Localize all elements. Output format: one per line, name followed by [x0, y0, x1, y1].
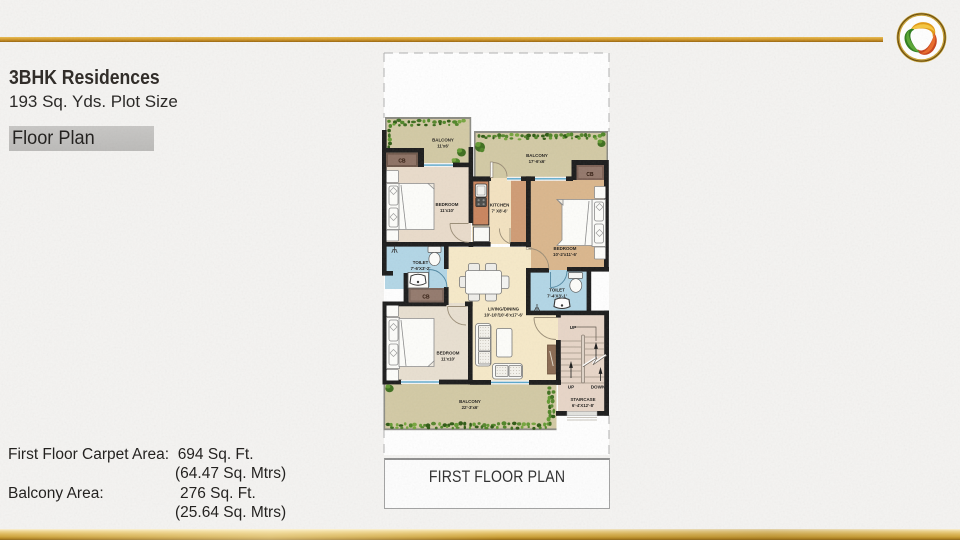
svg-text:11'x10': 11'x10' — [441, 357, 455, 362]
svg-text:11'x10': 11'x10' — [440, 208, 454, 213]
svg-text:BEDROOM: BEDROOM — [554, 246, 577, 251]
svg-text:UP: UP — [570, 325, 576, 330]
svg-text:7'-6'X3'-2': 7'-6'X3'-2' — [411, 266, 431, 271]
svg-text:STAIRCASE: STAIRCASE — [570, 397, 595, 402]
svg-text:17'-6'x6': 17'-6'x6' — [529, 159, 546, 164]
svg-text:TOILET: TOILET — [413, 260, 429, 265]
svg-text:TOILET: TOILET — [549, 288, 565, 293]
svg-text:CB: CB — [398, 159, 406, 165]
svg-text:11'x6': 11'x6' — [437, 144, 449, 149]
svg-text:BALCONY: BALCONY — [526, 153, 548, 158]
svg-text:22'-3'x6': 22'-3'x6' — [462, 405, 479, 410]
svg-text:7'-4'X3'-1': 7'-4'X3'-1' — [547, 294, 567, 299]
svg-text:7' X8'-6': 7' X8'-6' — [491, 209, 507, 214]
svg-text:6'-4'X12'-8': 6'-4'X12'-8' — [572, 403, 594, 408]
svg-text:LIVING/DINING: LIVING/DINING — [488, 307, 520, 312]
svg-text:CB: CB — [422, 295, 430, 301]
svg-text:10'-10'/10'-6'x17'-6': 10'-10'/10'-6'x17'-6' — [484, 313, 523, 318]
svg-text:BALCONY: BALCONY — [459, 399, 481, 404]
svg-text:BEDROOM: BEDROOM — [437, 351, 460, 356]
svg-text:UP: UP — [568, 385, 574, 390]
svg-text:10'-2'x11'-6': 10'-2'x11'-6' — [553, 252, 577, 257]
svg-text:KITCHEN: KITCHEN — [490, 203, 510, 208]
svg-text:CB: CB — [586, 172, 594, 178]
svg-text:BALCONY: BALCONY — [432, 138, 454, 143]
svg-text:DOWN: DOWN — [591, 385, 606, 390]
svg-text:BEDROOM: BEDROOM — [436, 202, 459, 207]
